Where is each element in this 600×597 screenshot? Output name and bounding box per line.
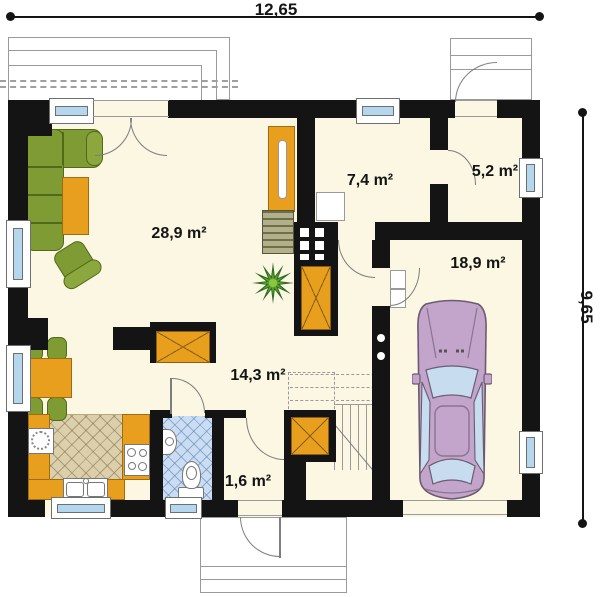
- fireplace-hearth: [156, 331, 210, 363]
- wall-segment: [106, 500, 168, 517]
- coffee-table: [62, 177, 89, 235]
- sofa-cushion-divider: [27, 166, 62, 168]
- sink-drain: [165, 437, 174, 446]
- cooktop: [124, 444, 150, 476]
- wall-segment: [522, 100, 540, 162]
- burner: [127, 448, 136, 457]
- flue-duct: [315, 241, 324, 250]
- understair-closet: [291, 417, 329, 455]
- faucet: [83, 478, 89, 484]
- stair-edge: [334, 404, 372, 405]
- wall-dot: [377, 334, 385, 342]
- wall-segment: [282, 500, 403, 517]
- floor-plan: 12,65 9,65: [0, 0, 600, 597]
- wall-segment: [113, 327, 150, 350]
- burner: [138, 462, 147, 471]
- wardrobe: [301, 266, 331, 330]
- sofa-cushion-divider: [62, 132, 64, 165]
- height-dimension-label: 9,65: [573, 277, 599, 337]
- width-dimension-label: 12,65: [255, 0, 298, 20]
- dining-chair: [47, 397, 67, 421]
- room-label-vestibule: 1,6 m²: [225, 473, 271, 491]
- flue-duct: [315, 228, 324, 237]
- entrance-porch-step: [200, 566, 347, 567]
- wall-segment: [212, 410, 224, 500]
- room-label-side-entry: 5,2 m²: [472, 163, 518, 181]
- stair-tread: [358, 404, 359, 470]
- toilet-seat: [186, 466, 197, 480]
- wall-segment: [150, 410, 172, 418]
- wall-segment: [150, 410, 163, 500]
- wall-segment: [297, 118, 315, 222]
- window-glass: [55, 106, 88, 116]
- sofa-cushion-divider: [27, 222, 62, 224]
- entrance-porch-step: [200, 579, 347, 580]
- radiator-unit: [262, 210, 294, 254]
- door-opening-line: [93, 100, 169, 101]
- car: [412, 296, 492, 504]
- garage-gate-line: [403, 500, 507, 501]
- side-porch-step: [450, 55, 532, 56]
- sofa-cushion-divider: [27, 194, 62, 196]
- wall-segment: [284, 462, 306, 500]
- roof-overhang-dashed-line: [0, 86, 238, 88]
- door-opening-line: [93, 116, 169, 117]
- wall-segment: [8, 100, 28, 222]
- cabinet-door-handle: [278, 140, 287, 199]
- wall-segment: [202, 500, 238, 517]
- wall-segment: [522, 472, 540, 517]
- wall-dot: [377, 352, 385, 360]
- door-opening-line: [238, 500, 282, 501]
- door-opening-line: [238, 515, 282, 516]
- dimension-dot: [6, 12, 15, 21]
- wall-segment: [224, 410, 246, 418]
- window-glass: [57, 504, 105, 513]
- wall-segment: [168, 100, 358, 118]
- window-glass: [362, 106, 394, 116]
- room-label-garage: 18,9 m²: [450, 255, 505, 273]
- stair-tread: [366, 404, 367, 470]
- wall-segment: [398, 100, 455, 118]
- terrace-step: [8, 65, 202, 100]
- wall-segment: [375, 222, 522, 240]
- window-glass: [13, 228, 23, 280]
- decor-bowl: [31, 431, 50, 450]
- stair-tread: [342, 404, 343, 470]
- room-label-hall: 14,3 m²: [230, 367, 285, 385]
- potted-plant: [252, 258, 294, 308]
- flue-duct: [300, 241, 309, 250]
- flue-duct: [300, 228, 309, 237]
- wall-segment: [430, 184, 448, 222]
- wall-segment: [28, 318, 48, 350]
- appliance-box: [316, 192, 345, 221]
- window-glass: [526, 437, 535, 468]
- wall-segment: [522, 197, 540, 434]
- wall-segment: [430, 118, 448, 150]
- stair-tread: [350, 404, 351, 470]
- wall-segment: [8, 288, 28, 348]
- roof-overhang-dashed-line: [0, 80, 238, 82]
- dimension-dot: [535, 12, 544, 21]
- door-opening-line: [455, 116, 497, 117]
- window-glass: [13, 353, 23, 404]
- garage-gate-line: [403, 514, 507, 515]
- dimension-dot: [578, 108, 587, 117]
- stair-upper-flight-outline: [288, 372, 335, 414]
- window-glass: [170, 504, 197, 513]
- kitchen-tile-floor: [48, 414, 124, 480]
- room-label-living: 28,9 m²: [151, 225, 206, 243]
- wall-segment: [8, 500, 45, 517]
- room-label-utility: 7,4 m²: [347, 172, 393, 190]
- burner: [139, 449, 147, 457]
- dimension-dot: [578, 519, 587, 528]
- burner: [128, 462, 136, 470]
- window-glass: [526, 164, 535, 192]
